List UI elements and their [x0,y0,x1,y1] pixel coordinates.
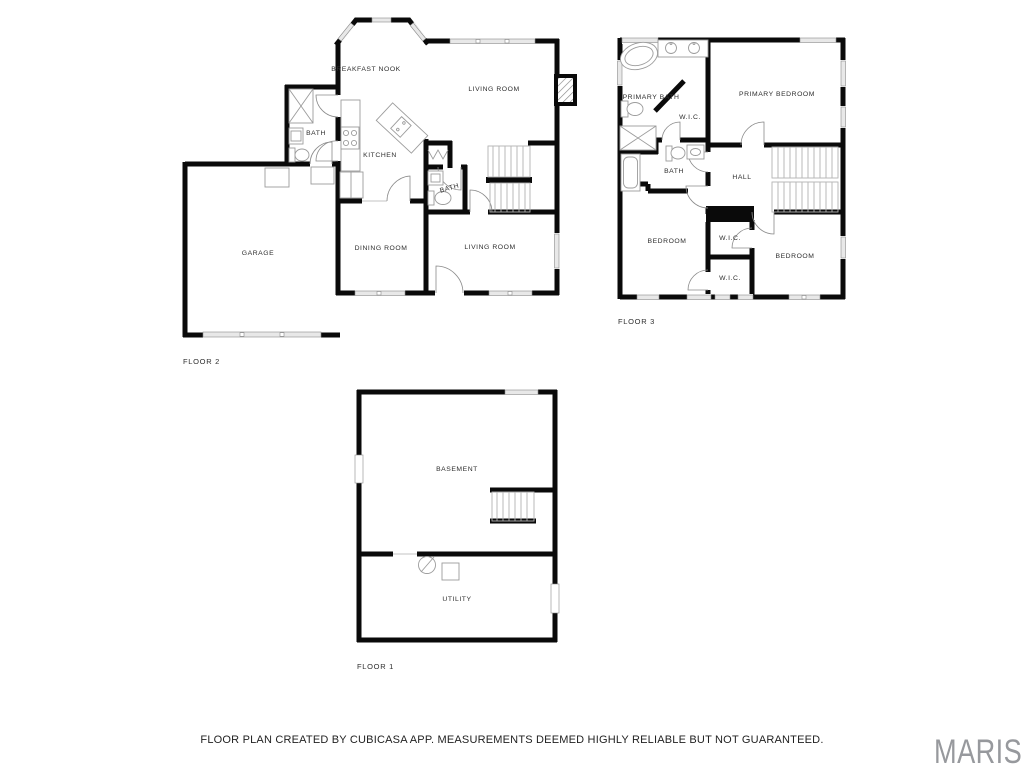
room-label-kitchen: KITCHEN [363,152,397,159]
floor1-room-labels: BASEMENT UTILITY [436,466,478,603]
floor2-fixtures [265,89,451,205]
window [738,294,753,301]
room-label-bath-left: BATH [306,130,326,137]
floor1-name-label: FLOOR 1 [357,662,394,671]
window [840,236,847,259]
water-heater-icon [419,557,436,574]
door-arc [316,95,338,117]
shower-icon [289,89,313,123]
floorplan-sheet: { "page": { "footer_text": "FLOOR PLAN C… [0,0,1024,768]
room-label-hall: HALL [732,174,751,181]
room-label-utility: UTILITY [442,596,471,603]
bathtub-icon [621,154,640,191]
garage-door [203,331,321,339]
floor3-stairs [772,147,838,212]
shower-icon [620,126,656,150]
floor3-room-labels: PRIMARY BATH PRIMARY BEDROOM W.I.C. BATH… [623,91,815,282]
toilet-icon [621,101,643,117]
window [355,455,363,483]
kitchen-island-icon [376,103,427,153]
sink-icon [687,145,704,159]
window [337,22,354,41]
sink-icon [289,128,303,144]
window [551,584,559,613]
window [637,294,659,301]
door-arc [470,190,492,212]
window [554,233,561,269]
room-label-living-room-lower: LIVING ROOM [464,244,515,251]
stove-icon [341,127,359,149]
furnace-icon [442,563,459,580]
door-arc [741,122,764,145]
disclaimer-text: FLOOR PLAN CREATED BY CUBICASA APP. MEAS… [0,734,1024,746]
door-arc [686,186,708,208]
room-label-breakfast-nook: BREAKFAST NOOK [331,66,401,73]
toilet-icon [289,148,309,162]
floor1-fixtures [419,557,460,581]
window [409,22,426,41]
door-arc [436,266,463,293]
door-arc [688,270,708,290]
floor2-name-label: FLOOR 2 [183,357,220,366]
window [789,294,820,301]
door-arc [752,212,774,234]
room-label-bedroom-right: BEDROOM [776,253,815,260]
closet-rod-icon [428,150,448,159]
window [800,37,836,44]
room-label-wic-primary: W.I.C. [679,114,701,121]
entry-step [311,167,334,184]
window [450,38,535,45]
floor1-plan: BASEMENT UTILITY FLOOR 1 [355,389,559,671]
floor3-name-label: FLOOR 3 [618,317,655,326]
door-arc [662,122,680,140]
floor3-windows [617,37,847,301]
room-label-garage: GARAGE [242,250,274,257]
toilet-icon [428,191,451,205]
window [840,60,847,87]
window [489,290,532,297]
floorplan-canvas: BREAKFAST NOOK LIVING ROOM BATH KITCHEN … [0,0,1024,768]
window [715,294,730,301]
room-label-dining-room: DINING ROOM [355,245,408,252]
room-label-bath: BATH [664,168,684,175]
room-label-primary-bath: PRIMARY BATH [623,94,680,101]
floor1-stairs [492,492,534,521]
floor2-plan: BREAKFAST NOOK LIVING ROOM BATH KITCHEN … [183,17,575,366]
room-label-living-room-upper: LIVING ROOM [468,86,519,93]
room-label-primary-bedroom: PRIMARY BEDROOM [739,91,815,98]
fridge-icon [340,172,363,198]
sink-icon [428,171,443,185]
window [355,290,405,297]
window [505,389,538,396]
window [687,294,711,301]
vanity-sinks-icon [658,40,708,57]
door-arc [316,141,338,161]
toilet-icon [666,146,685,161]
window [372,17,391,23]
maris-watermark: MARIS [934,733,1022,772]
room-label-bedroom-left: BEDROOM [648,238,687,245]
fireplace-icon [556,76,575,104]
floor3-plan: PRIMARY BATH PRIMARY BEDROOM W.I.C. BATH… [617,37,847,326]
garage-bench [265,168,289,187]
room-label-wic-lower: W.I.C. [719,275,741,282]
room-label-wic-upper: W.I.C. [719,235,741,242]
window [840,106,847,128]
door-arc [387,176,410,201]
room-label-basement: BASEMENT [436,466,478,473]
